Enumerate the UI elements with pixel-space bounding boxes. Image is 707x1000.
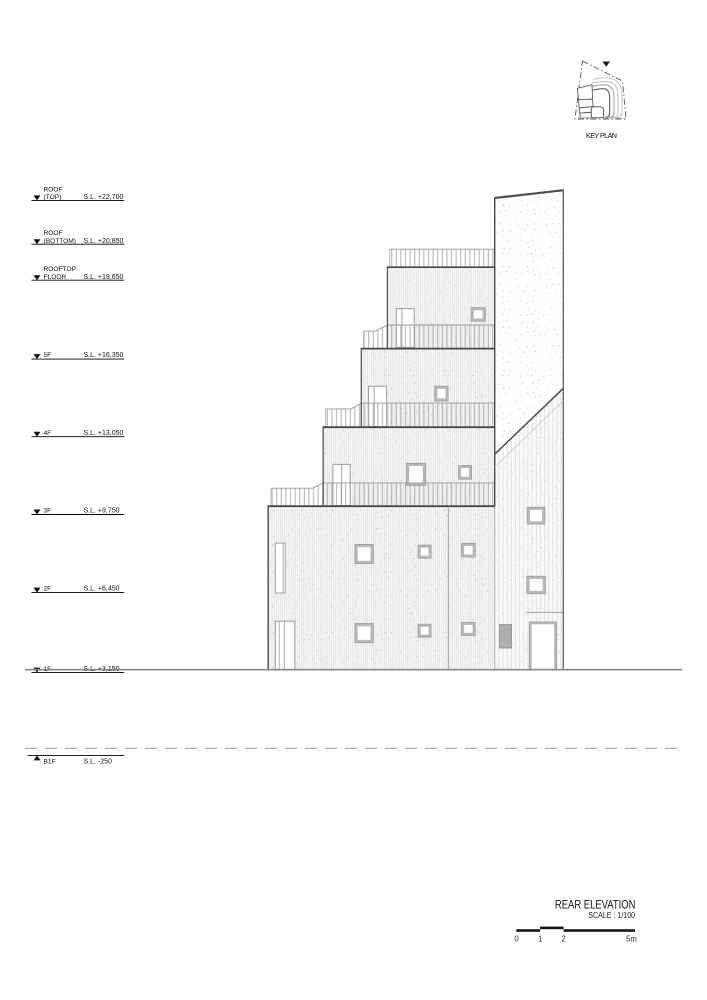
svg-text:S.L. +16,350: S.L. +16,350 [84,352,124,359]
svg-text:1: 1 [538,934,542,943]
svg-text:S.L. -250: S.L. -250 [84,759,113,766]
svg-text:(TOP): (TOP) [44,194,62,201]
svg-text:SCALE : 1/100: SCALE : 1/100 [588,911,635,920]
svg-text:S.L. +9,750: S.L. +9,750 [84,508,120,515]
svg-text:ROOF: ROOF [44,186,63,193]
svg-text:(BOTTOM): (BOTTOM) [44,238,76,245]
svg-text:2: 2 [562,934,566,943]
svg-text:0: 0 [514,934,519,943]
svg-text:4F: 4F [44,430,52,437]
svg-text:5F: 5F [44,352,52,359]
svg-text:REAR ELEVATION: REAR ELEVATION [555,897,636,911]
svg-text:2F: 2F [44,586,52,593]
svg-text:KEY PLAN: KEY PLAN [586,131,617,140]
svg-text:S.L. +19,650: S.L. +19,650 [84,274,124,281]
svg-text:5m: 5m [626,934,637,943]
svg-text:S.L. +20,850: S.L. +20,850 [84,238,124,245]
svg-text:FLOOR: FLOOR [44,274,67,281]
svg-text:ROOFTOP: ROOFTOP [44,266,77,273]
svg-text:3F: 3F [44,508,52,515]
svg-text:S.L. +22,700: S.L. +22,700 [84,194,124,201]
svg-text:B1F: B1F [44,759,56,766]
svg-text:S.L. +13,050: S.L. +13,050 [84,430,124,437]
svg-text:S.L. +6,450: S.L. +6,450 [84,586,120,593]
svg-text:ROOF: ROOF [44,230,63,237]
